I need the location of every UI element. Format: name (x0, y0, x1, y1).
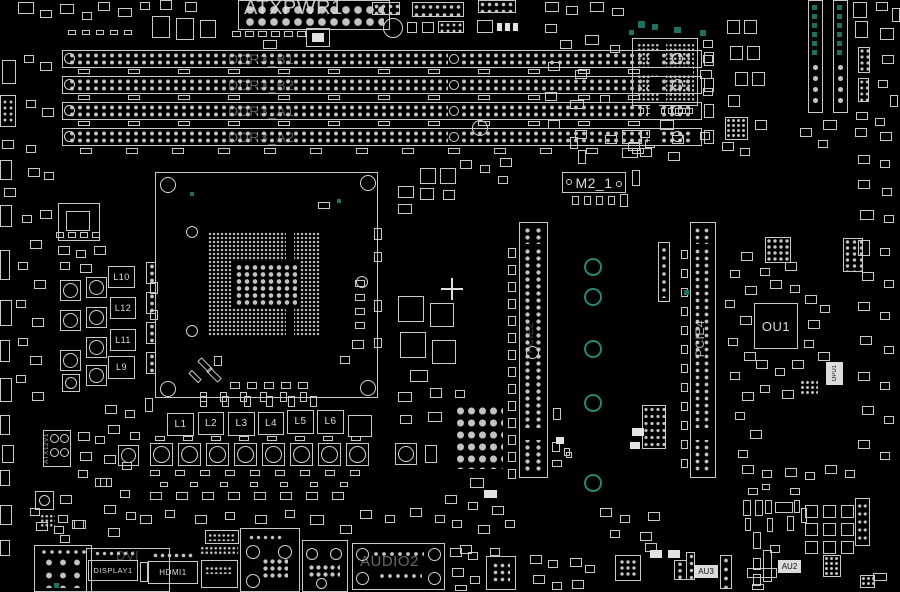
component (228, 95, 240, 100)
component (640, 532, 652, 541)
component (298, 382, 308, 389)
component (275, 470, 285, 476)
component (244, 396, 251, 407)
component (762, 484, 770, 490)
component (460, 160, 472, 169)
component (18, 262, 28, 270)
au3-label[interactable]: AU3 (694, 565, 718, 578)
component (747, 568, 777, 578)
capacitor-ring (65, 377, 77, 389)
component (155, 436, 165, 441)
component (585, 565, 595, 573)
component (108, 425, 120, 434)
pin-array (378, 572, 422, 580)
capacitor-ring (237, 446, 254, 463)
component (374, 300, 382, 312)
component (126, 148, 138, 154)
component (80, 264, 92, 273)
pin-array (152, 552, 194, 560)
capacitor-ring (181, 446, 198, 463)
component (681, 345, 688, 354)
component (735, 412, 745, 420)
component (254, 492, 266, 500)
capacitor-ring (63, 313, 78, 328)
pin-array (725, 117, 748, 140)
component (505, 520, 515, 528)
component (420, 188, 434, 200)
hole (449, 80, 459, 90)
component (468, 552, 478, 560)
fiducial-marker (638, 21, 645, 28)
component (785, 468, 797, 477)
component (528, 69, 540, 74)
pin-array (455, 405, 503, 469)
component (30, 356, 42, 365)
component (841, 541, 854, 554)
component (340, 482, 348, 487)
component (880, 312, 890, 320)
slot-key-notch (650, 103, 659, 119)
component (528, 121, 540, 126)
component (428, 121, 440, 126)
capacitor (318, 443, 341, 466)
component (858, 302, 870, 311)
inductor-l3[interactable]: L3 (228, 412, 255, 436)
component (884, 346, 894, 354)
component (284, 31, 293, 37)
component (128, 69, 140, 74)
component (548, 560, 558, 568)
component (258, 31, 267, 37)
fiducial-marker (812, 32, 817, 37)
component (455, 390, 465, 398)
component (183, 436, 193, 441)
component (172, 148, 184, 154)
component (681, 402, 688, 411)
pin-array (308, 564, 340, 578)
capacitor-ring (265, 446, 282, 463)
component (443, 190, 455, 200)
component (892, 8, 900, 22)
ddr3-b2-label: DDR3_B2 (228, 78, 295, 92)
slot-key-notch (650, 129, 659, 145)
component (722, 142, 734, 151)
component (220, 482, 228, 487)
component (668, 550, 680, 558)
component (620, 194, 628, 207)
component (280, 492, 292, 500)
component (728, 95, 740, 107)
hole (246, 545, 260, 559)
capacitor (234, 443, 257, 466)
component (884, 416, 894, 424)
ddr3-a2-label: DDR3_A2 (228, 130, 295, 144)
component (508, 469, 516, 479)
component (348, 415, 372, 437)
fiducial-marker (700, 30, 706, 36)
component (578, 121, 590, 126)
opu1-label[interactable]: OPU1 (826, 362, 843, 385)
component (60, 4, 74, 14)
component (278, 95, 290, 100)
component (300, 392, 307, 402)
au2-label[interactable]: AU2 (778, 560, 801, 573)
fiducial-marker (837, 23, 842, 28)
component (681, 421, 688, 430)
pin-array (248, 534, 282, 541)
component (328, 95, 340, 100)
component (508, 384, 516, 394)
pin-array (438, 21, 464, 33)
component (823, 523, 836, 536)
component (873, 573, 887, 581)
capacitor-ring (63, 353, 78, 368)
component (422, 22, 434, 33)
component (202, 492, 214, 500)
component (82, 30, 90, 35)
component (856, 112, 868, 120)
hole (50, 448, 59, 457)
component (728, 338, 738, 346)
pin-array (146, 322, 156, 344)
component (140, 2, 150, 10)
component (455, 585, 467, 591)
component (374, 252, 382, 262)
slot-key-notch (286, 308, 294, 336)
component (66, 211, 90, 231)
component (328, 69, 340, 74)
inductor-l11-text: L11 (115, 336, 131, 345)
component (26, 145, 36, 153)
capacitor-ring (349, 446, 366, 463)
pin-array (68, 130, 648, 144)
component (128, 95, 140, 100)
component (122, 462, 132, 470)
component (632, 170, 640, 186)
component (505, 23, 510, 31)
component (178, 69, 190, 74)
component (200, 20, 216, 38)
component (78, 121, 90, 126)
hole (449, 106, 459, 116)
component (125, 410, 135, 418)
ddr3-a1-label: DDR3_A1 (228, 104, 295, 118)
mounting-hole (584, 258, 602, 276)
capacitor-ring (89, 280, 104, 295)
capacitor-ring (293, 446, 310, 463)
component (351, 436, 361, 441)
component (560, 40, 572, 49)
component (312, 33, 324, 42)
component (668, 152, 680, 161)
component (744, 352, 756, 361)
component (681, 326, 688, 335)
fiducial-marker (812, 5, 817, 10)
au3-label-text: AU3 (698, 568, 714, 576)
component (748, 488, 758, 495)
component (435, 515, 445, 523)
pin-array (860, 575, 875, 588)
pin-array (146, 262, 156, 284)
component (500, 158, 512, 167)
pin-array (660, 246, 668, 298)
inductor-l2-text: L2 (205, 419, 217, 429)
component (790, 488, 800, 495)
component (100, 478, 112, 487)
component (0, 300, 12, 326)
component (880, 160, 890, 168)
component (528, 95, 540, 100)
component (280, 482, 288, 487)
component (862, 272, 874, 281)
component (452, 520, 462, 528)
hole (186, 325, 198, 337)
inductor-l2[interactable]: L2 (198, 412, 224, 435)
component (880, 248, 890, 256)
component (880, 452, 890, 460)
fiducial-marker (812, 14, 817, 19)
component (228, 69, 240, 74)
inductor-l4[interactable]: L4 (258, 412, 284, 435)
component (76, 250, 86, 258)
component (78, 432, 90, 441)
capacitor (60, 350, 81, 371)
component (823, 120, 837, 130)
inductor-l12[interactable]: L12 (110, 297, 136, 319)
component (841, 505, 854, 518)
component (770, 280, 782, 289)
component (150, 470, 160, 476)
component (310, 396, 317, 407)
component (398, 392, 412, 402)
slot-key-notch (638, 68, 693, 74)
component (880, 28, 894, 40)
component (681, 269, 688, 278)
component (818, 140, 828, 148)
component (775, 502, 793, 513)
hole (428, 548, 441, 561)
component (681, 364, 688, 373)
component (150, 492, 162, 500)
component (340, 356, 350, 364)
hole (428, 572, 441, 585)
component (32, 392, 44, 401)
component (508, 316, 516, 326)
hdmi1-label[interactable]: HDMI1 (148, 561, 198, 584)
component (306, 492, 318, 500)
pin-array (262, 558, 288, 580)
component (470, 576, 480, 584)
component (882, 55, 894, 64)
pin-array (823, 555, 841, 577)
component (787, 516, 794, 531)
inductor-l10[interactable]: L10 (108, 266, 135, 288)
component (26, 100, 36, 108)
component (858, 372, 870, 381)
pin-array (235, 264, 297, 305)
component (267, 436, 277, 441)
component (566, 452, 572, 458)
fiducial-marker (812, 23, 817, 28)
component (704, 130, 714, 144)
component (82, 12, 92, 20)
hole (306, 548, 318, 560)
component (756, 360, 768, 369)
pin-array (835, 62, 846, 108)
capacitor (290, 443, 313, 466)
component (30, 508, 40, 516)
pin-array (208, 533, 236, 541)
ou1-chip-text: OU1 (762, 320, 790, 333)
component (760, 268, 770, 276)
component (468, 502, 478, 510)
hole (449, 54, 459, 64)
component (128, 121, 140, 126)
component (222, 396, 229, 407)
component (178, 95, 190, 100)
component (492, 506, 504, 515)
inductor-l9[interactable]: L9 (108, 356, 135, 379)
ddr3-b1-label: DDR3_B1 (228, 52, 295, 66)
component (508, 435, 516, 445)
component (0, 415, 10, 435)
component (44, 172, 54, 180)
component (596, 196, 603, 205)
component (398, 186, 414, 198)
component (118, 8, 132, 17)
component (410, 370, 428, 382)
component (808, 320, 820, 329)
component (94, 246, 106, 255)
component (628, 95, 640, 100)
inductor-l1[interactable]: L1 (167, 413, 194, 436)
display1-label-text: DISPLAY1 (93, 567, 132, 575)
component (540, 148, 552, 154)
component (2, 60, 16, 84)
component (782, 390, 794, 399)
component (858, 155, 870, 164)
component (4, 188, 16, 197)
component (572, 196, 579, 205)
ou1-chip[interactable]: OU1 (754, 303, 798, 349)
component (530, 555, 542, 564)
component (845, 470, 855, 478)
component (470, 478, 484, 488)
component (92, 232, 100, 238)
component (318, 202, 330, 209)
component (228, 492, 240, 500)
inductor-l4-text: L4 (265, 419, 277, 429)
fiducial-marker (190, 192, 194, 196)
component (0, 340, 10, 362)
hole (526, 346, 539, 359)
component (68, 232, 76, 238)
component (0, 205, 12, 227)
inductor-l6[interactable]: L6 (317, 410, 344, 434)
component (374, 228, 382, 240)
component (104, 455, 116, 464)
component (704, 104, 714, 118)
component (590, 2, 604, 12)
component (450, 548, 462, 557)
pin-array (94, 550, 136, 557)
hole (64, 131, 75, 142)
component (398, 296, 424, 322)
component (545, 24, 557, 33)
pin-array (2, 99, 14, 123)
component (876, 2, 888, 11)
component (767, 518, 773, 532)
component (600, 508, 612, 517)
component (738, 450, 748, 458)
component (725, 300, 735, 308)
component (484, 490, 497, 498)
hole (672, 131, 683, 142)
component (805, 505, 818, 518)
component (760, 385, 770, 393)
hole (672, 53, 683, 64)
component (245, 31, 254, 37)
capacitor-ring (63, 283, 78, 298)
component (552, 460, 562, 467)
component (428, 69, 440, 74)
component (40, 62, 52, 71)
component (785, 262, 797, 271)
pin-array (765, 237, 791, 263)
component (650, 550, 662, 558)
pin-array (800, 380, 818, 394)
component (175, 470, 185, 476)
component (295, 436, 305, 441)
component (124, 30, 132, 35)
inductor-l11[interactable]: L11 (110, 329, 136, 351)
component (140, 515, 152, 524)
component (508, 452, 516, 462)
capacitor (62, 374, 80, 392)
hole (360, 175, 376, 191)
component (704, 52, 714, 66)
hole (60, 448, 69, 457)
component (508, 350, 516, 360)
component (145, 398, 153, 412)
component (584, 196, 591, 205)
component (328, 121, 340, 126)
pin-array (40, 548, 86, 554)
component (853, 2, 867, 18)
component (497, 23, 502, 31)
component (513, 23, 518, 31)
component (402, 148, 414, 154)
component (552, 582, 562, 590)
component (752, 72, 765, 86)
capacitor (86, 365, 107, 386)
component (572, 580, 584, 589)
pin-array (412, 2, 464, 17)
component (355, 280, 365, 287)
hole (39, 495, 50, 506)
slot-key-notch (650, 77, 659, 93)
inductor-l5[interactable]: L5 (287, 410, 314, 434)
component (225, 470, 235, 476)
component (855, 21, 868, 38)
capacitor (150, 443, 173, 466)
slot-key-notch (691, 428, 715, 440)
hole (64, 79, 75, 90)
component (178, 121, 190, 126)
component (0, 470, 10, 486)
component (247, 382, 257, 389)
display1-label[interactable]: DISPLAY1 (88, 560, 138, 581)
